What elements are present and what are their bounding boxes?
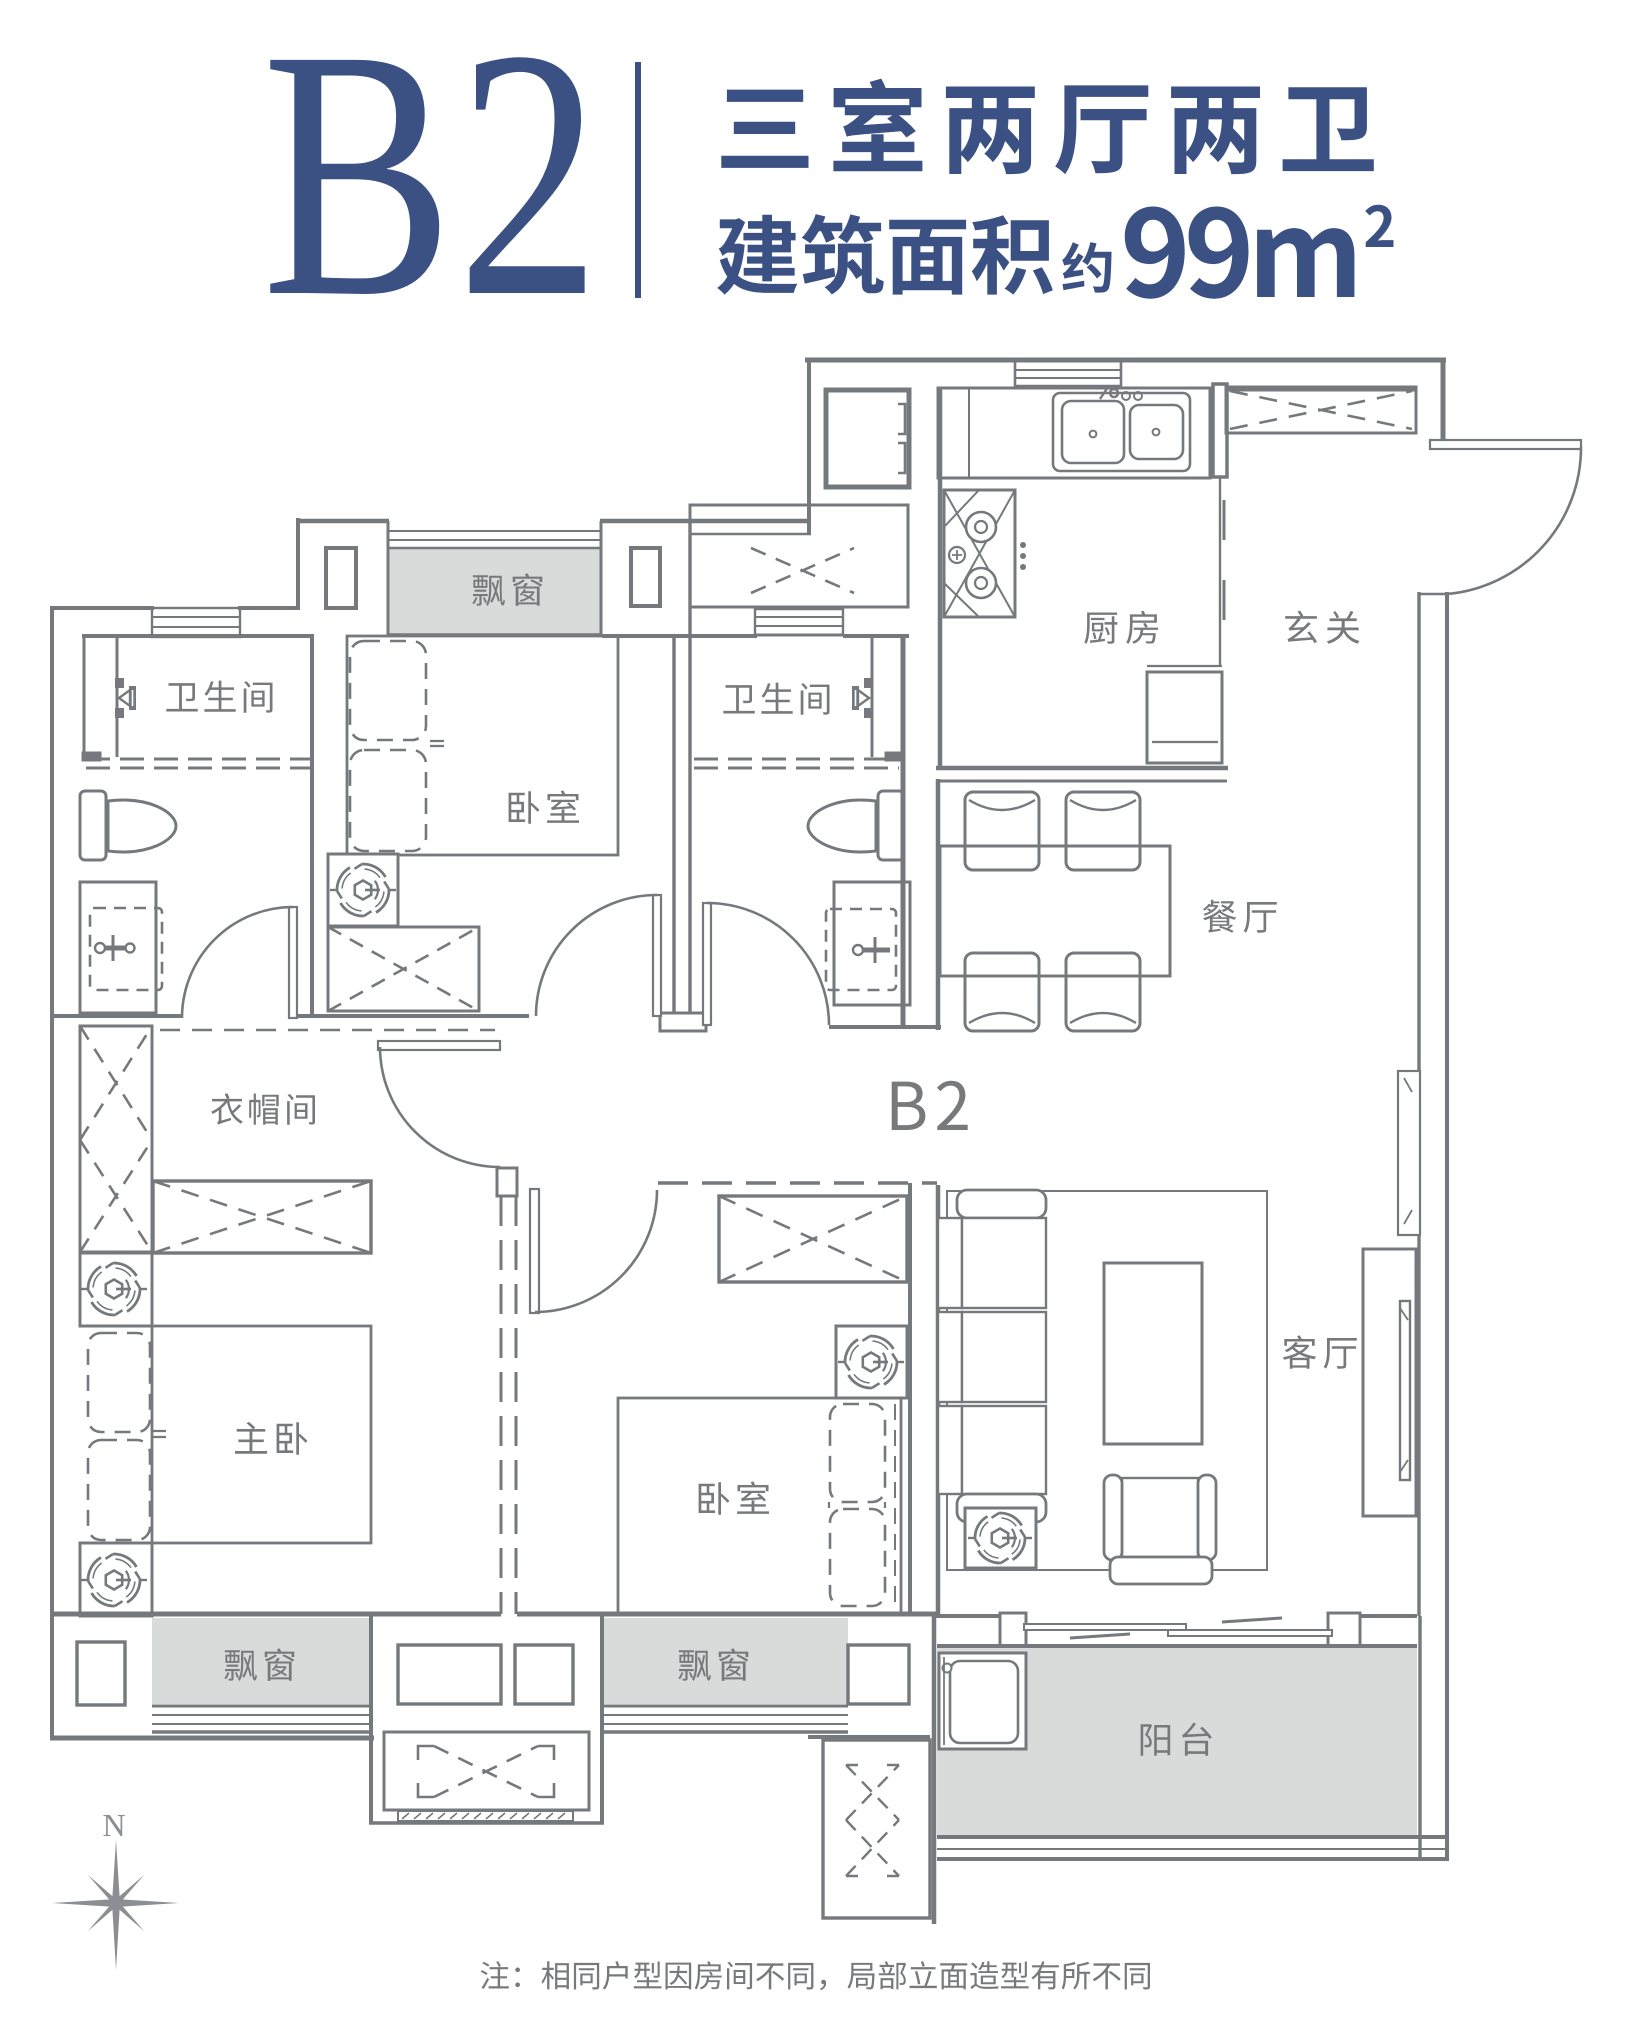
svg-text:N: N — [102, 1807, 125, 1843]
